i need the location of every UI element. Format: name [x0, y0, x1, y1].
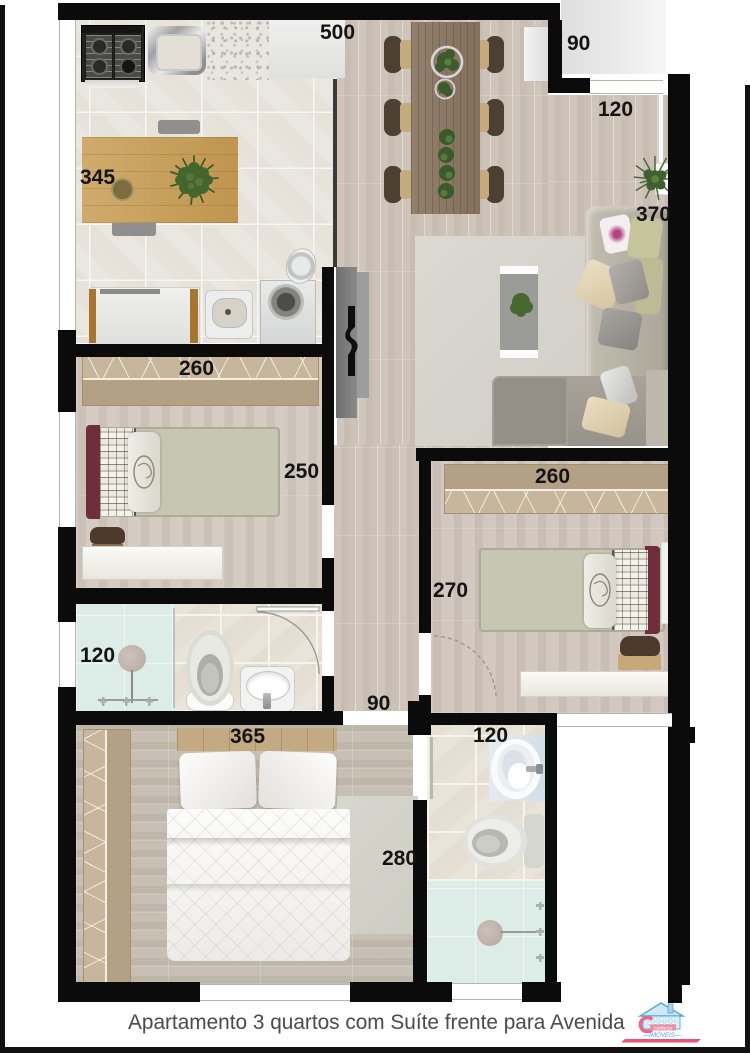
svg-text:—IMÓVEIS—: —IMÓVEIS—	[642, 1032, 682, 1039]
svg-text:confiança: confiança	[654, 1025, 673, 1030]
